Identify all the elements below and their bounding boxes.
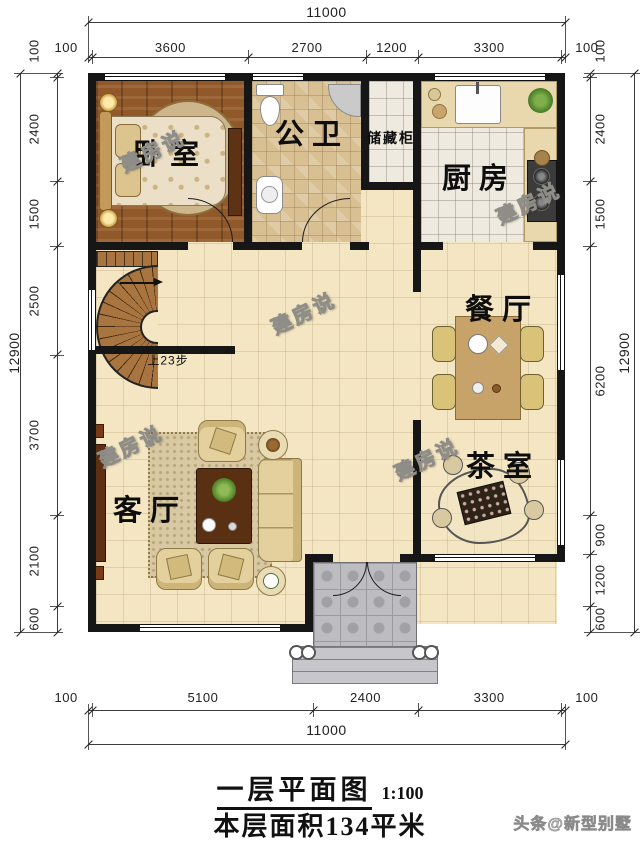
dim-label-top: 3300	[474, 40, 505, 55]
nightstand-lamp	[99, 93, 118, 112]
dining-cup	[472, 382, 484, 394]
dim-line	[634, 73, 635, 632]
tea-stool	[432, 508, 452, 528]
coffee-table-plant	[212, 478, 236, 502]
tea-window-south	[435, 554, 535, 562]
tea-window-east	[557, 460, 565, 545]
dim-line	[88, 710, 565, 711]
room-label-kitchen: 厨房	[442, 155, 516, 197]
kitchen-pot	[534, 150, 550, 166]
kitchen-window	[435, 73, 545, 81]
stairs-note: 上23步	[147, 352, 188, 369]
drawing-title-block: 一层平面图1:100	[0, 768, 640, 807]
dining-cup	[492, 384, 501, 393]
dim-label-left: 2500	[27, 285, 42, 316]
nightstand-lamp	[99, 209, 118, 228]
dining-chair	[432, 326, 456, 362]
dim-label-right: 1200	[593, 565, 608, 596]
stairs-direction-line	[120, 282, 156, 284]
wall-kitchen-south-b	[533, 242, 557, 250]
dim-total-left: 12900	[6, 332, 22, 373]
wall-kitchen-south-a	[413, 242, 443, 250]
living-window	[140, 624, 280, 632]
room-label-tea: 茶室	[466, 443, 540, 485]
dim-label-top: 2700	[292, 40, 323, 55]
dim-label-left: 100	[27, 40, 42, 63]
side-table-plate	[263, 573, 279, 589]
dining-chair	[520, 326, 544, 362]
kitchen-bowl	[428, 88, 441, 101]
room-label-dining: 餐厅	[465, 286, 539, 328]
wall-porch-west	[305, 554, 313, 632]
drawing-title: 一层平面图	[217, 775, 372, 810]
entrance-porch	[313, 562, 417, 648]
coffee-table-cup	[228, 522, 237, 531]
dim-label-left: 600	[27, 607, 42, 630]
floor-plan-page: 卧室 公卫 储藏柜 厨房 餐厅 茶室 客厅 上23步 建房说 建房说 建房说 建…	[0, 0, 640, 842]
dining-window	[557, 275, 565, 370]
kitchen-plant	[528, 88, 553, 113]
dining-chair	[432, 374, 456, 410]
dim-label-right: 100	[593, 40, 608, 63]
room-label-storage: 储藏柜	[367, 128, 415, 148]
dim-label-right: 2400	[593, 114, 608, 145]
wall-hall-east-a	[413, 250, 421, 292]
wall-bedroom-south-a	[88, 242, 188, 250]
dim-label-bottom: 100	[55, 690, 78, 705]
dim-total-bottom: 11000	[306, 722, 346, 738]
bedroom-window	[105, 73, 225, 81]
dim-line	[88, 57, 565, 58]
room-label-bathroom: 公卫	[275, 111, 349, 153]
wall-bedroom-east	[244, 73, 252, 250]
dim-label-top: 3600	[155, 40, 186, 55]
stairs-arrow-head	[154, 278, 163, 286]
wall-hall-east-b	[413, 420, 421, 562]
dim-line	[88, 744, 565, 745]
wall-bath-south-a	[244, 242, 302, 250]
dim-label-left: 2400	[27, 114, 42, 145]
wall-kitchen-west	[413, 73, 421, 250]
dim-label-bottom: 2400	[350, 690, 381, 705]
dim-label-left: 2100	[27, 545, 42, 576]
dim-label-top: 1200	[376, 40, 407, 55]
dining-chair	[520, 374, 544, 410]
dim-line	[590, 73, 591, 632]
dining-plate	[468, 334, 488, 354]
tea-stool	[524, 500, 544, 520]
dim-line	[88, 22, 565, 23]
bed-headboard	[99, 111, 112, 211]
bathroom-window	[253, 73, 303, 81]
dim-label-right: 900	[593, 523, 608, 546]
wall-storage-south	[361, 182, 421, 190]
stairs-window	[88, 290, 96, 350]
dim-label-right: 600	[593, 607, 608, 630]
porch-column	[301, 645, 316, 660]
kitchen-faucet	[476, 82, 479, 94]
dim-total-right: 12900	[616, 332, 632, 373]
coffee-table-tray	[202, 518, 216, 532]
credit-watermark: 头条@新型别墅	[513, 810, 632, 834]
room-label-living: 客厅	[113, 487, 187, 529]
kitchen-bowl	[432, 104, 447, 119]
dim-label-left: 1500	[27, 198, 42, 229]
porch-column	[424, 645, 439, 660]
dim-label-bottom: 3300	[474, 690, 505, 705]
bedroom-tv-cabinet	[228, 128, 242, 216]
wall-bath-south-b	[350, 242, 369, 250]
dining-table	[455, 316, 521, 420]
wash-basin-bowl	[261, 186, 278, 203]
armchair-cushion	[166, 554, 192, 580]
dim-label-bottom: 5100	[187, 690, 218, 705]
toilet	[256, 84, 284, 96]
dim-total-top: 11000	[306, 4, 346, 20]
dim-label-right: 6200	[593, 365, 608, 396]
dim-label-left: 3700	[27, 419, 42, 450]
sofa-three-seat	[258, 458, 302, 562]
dim-label-top: 100	[55, 40, 78, 55]
dim-label-bottom: 100	[575, 690, 598, 705]
side-table-plant-pot	[266, 438, 280, 452]
drawing-scale: 1:100	[382, 783, 424, 803]
dim-label-right: 1500	[593, 198, 608, 229]
